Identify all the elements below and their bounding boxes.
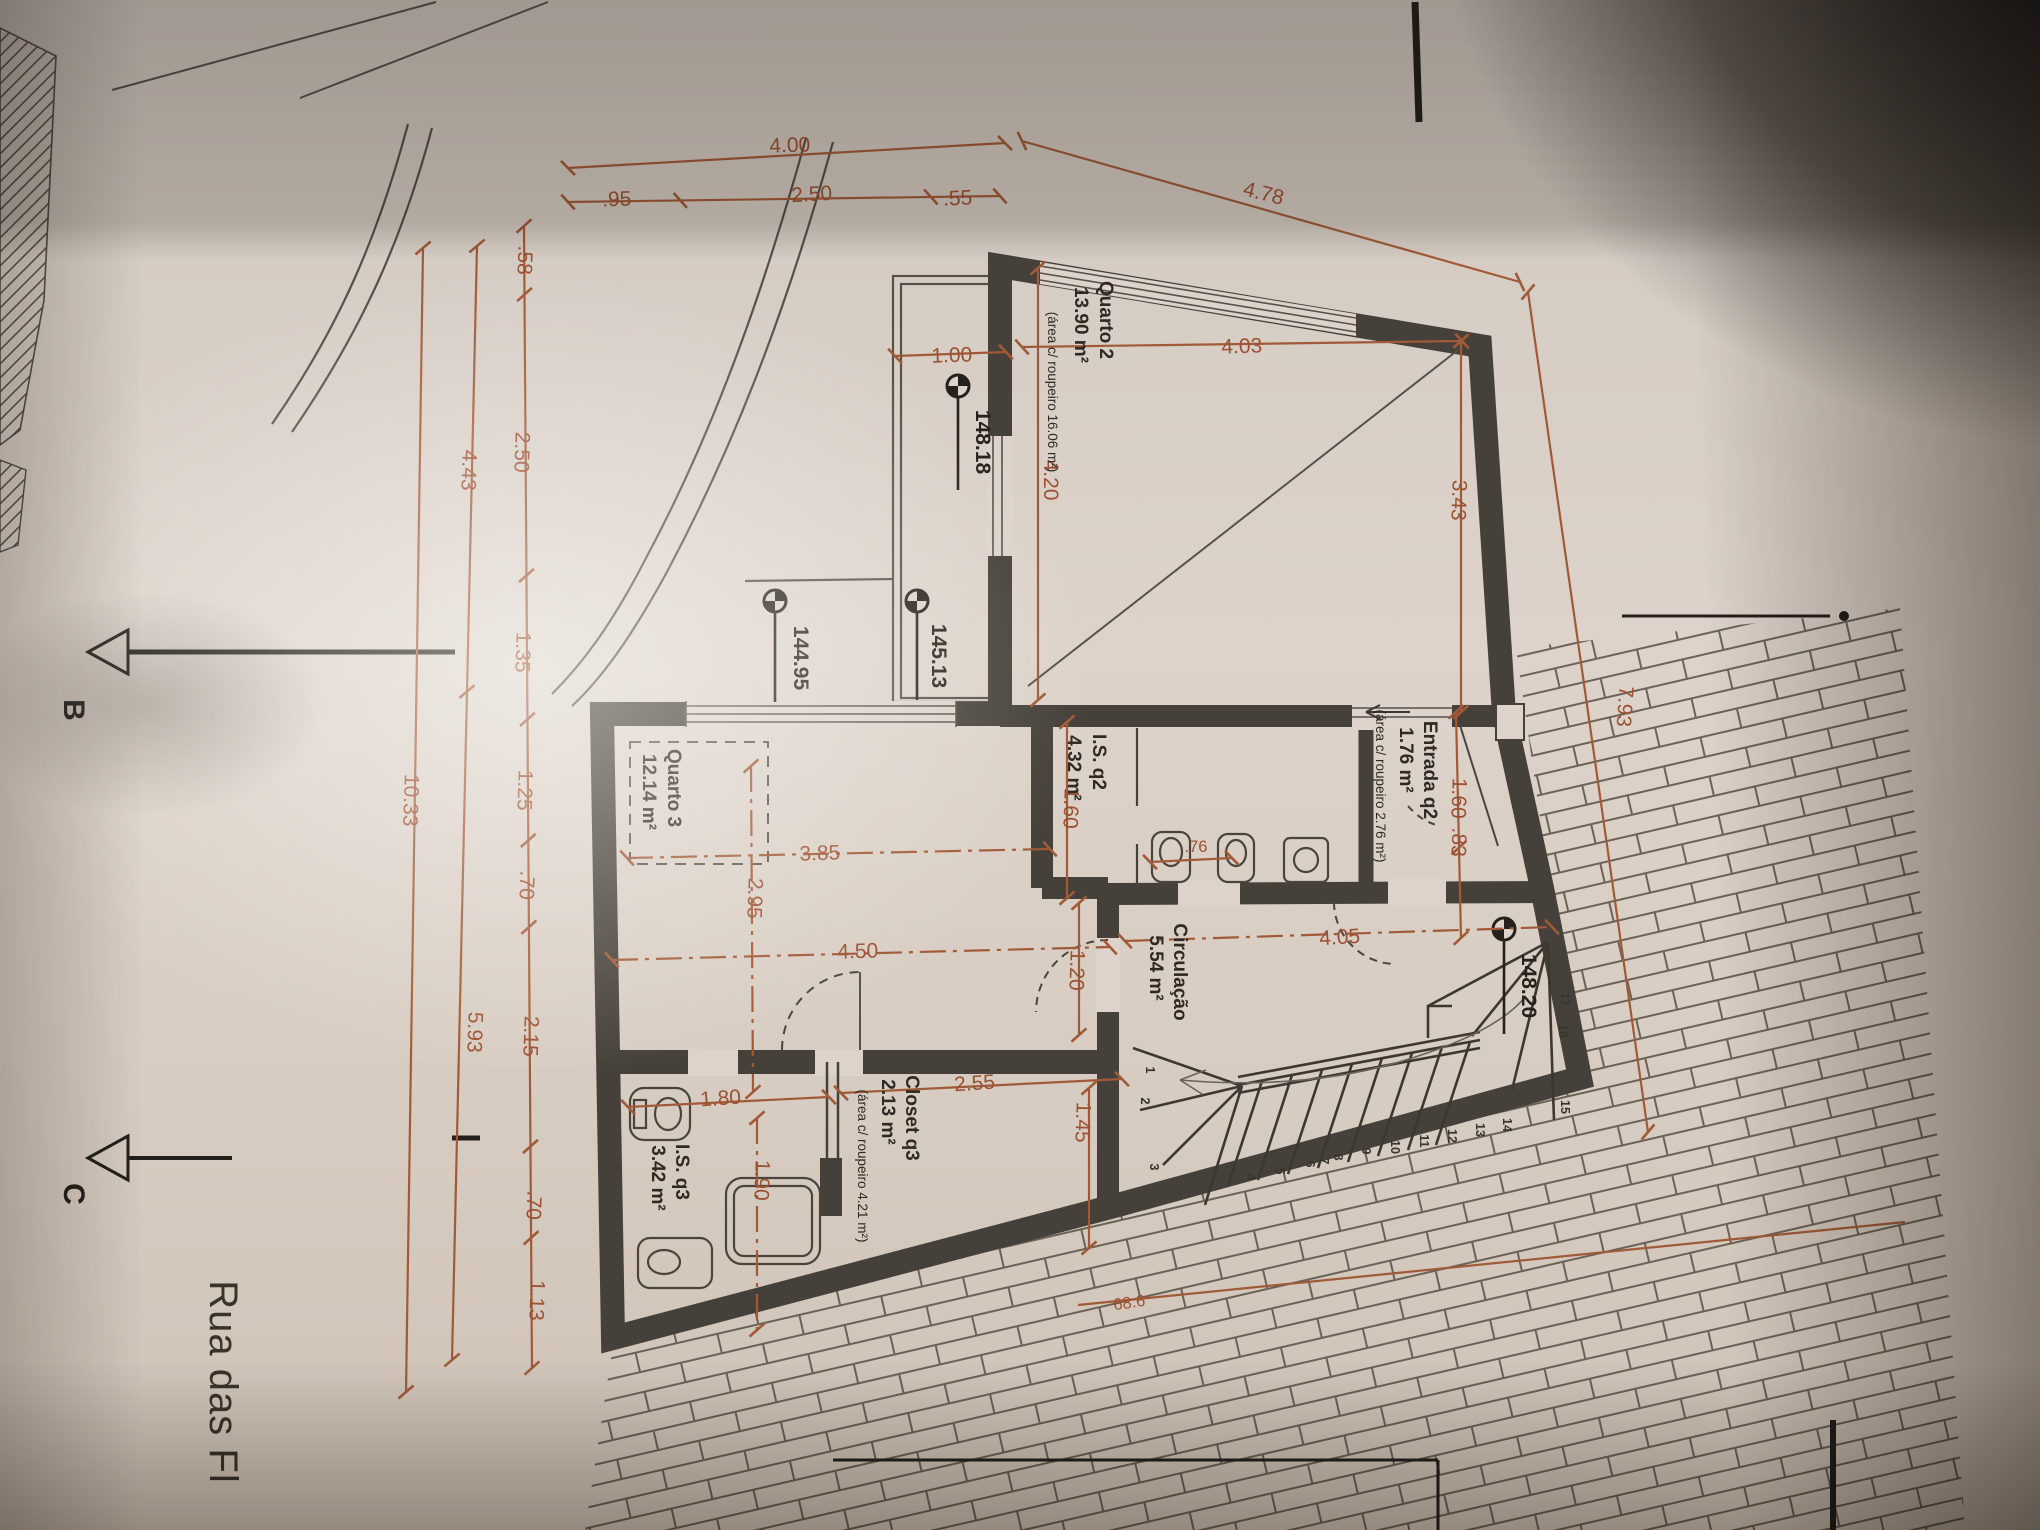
section-marker-c-arrow-icon (88, 1136, 128, 1180)
stair-step-number: 11 (1417, 1134, 1431, 1147)
stair-step-number: 4 (1244, 1174, 1258, 1181)
dimension-line (452, 246, 477, 1360)
sink-isq2 (1284, 838, 1328, 882)
dimension-label: 5.93 (462, 1011, 486, 1053)
stair-step-number: 3 (1147, 1164, 1161, 1171)
street-name: Rua das Fl (201, 1280, 245, 1483)
dimension-label: 1.00 (931, 343, 973, 367)
dimension-label: .83 (1446, 827, 1470, 857)
dimension-line (751, 766, 753, 1092)
room-label: 4.32 m² (1063, 735, 1084, 800)
room-label: 1.76 m² (1395, 727, 1416, 792)
dimension-label: .55 (942, 186, 972, 210)
section-marker-b-arrow-icon (88, 630, 128, 674)
stair-step-number: 5 (1273, 1168, 1287, 1175)
dimension-label: 10.33 (398, 774, 423, 827)
dimension-label: 1.25 (512, 769, 536, 811)
stair-step-number: 15 (1558, 1100, 1572, 1114)
dimension-label: 2.55 (953, 1071, 995, 1097)
section-letter: B (57, 699, 90, 721)
stair-step-number: 1 (1143, 1067, 1157, 1074)
dimension-line (1022, 141, 1520, 282)
room-area-note: (área c/ roupeiro 4.21 m²) (855, 1089, 870, 1242)
dimension-label: 2.50 (509, 431, 533, 473)
room-label: 5.54 m² (1145, 935, 1166, 1000)
stair-step-number: 2 (1138, 1098, 1152, 1105)
dimension-label: 1.60 (1446, 777, 1470, 819)
room-label: I.S. q2 (1088, 734, 1109, 790)
dimension-line (1456, 712, 1461, 938)
dimension-label: 4.03 (1221, 334, 1263, 358)
dimension-label: 2.95 (742, 877, 766, 919)
dimension-label: 4.00 (769, 133, 811, 157)
stair-step-number: 12 (1445, 1129, 1459, 1143)
dimension-label: 4.43 (456, 449, 480, 491)
dimension-label: 2.50 (791, 182, 833, 207)
dimension-label: .76 (1185, 838, 1208, 856)
dimension-label: 7.93 (1612, 685, 1638, 727)
floor-plan-photo: 4.00.952.50.554.781.004.034.203.431.60.8… (0, 0, 2040, 1530)
dimension-label: 3.85 (799, 841, 841, 865)
dimension-label: 3.43 (1446, 479, 1470, 521)
dimension-label: .70 (514, 870, 538, 900)
dimension-label: 1.35 (510, 631, 534, 673)
stair-step-number: 13 (1473, 1123, 1487, 1137)
dimension-label: .70 (521, 1190, 545, 1220)
dimension-label: 1.45 (1070, 1101, 1094, 1143)
stair-step-number: 7 (1317, 1158, 1331, 1165)
stair-step-number: 10 (1388, 1140, 1402, 1154)
room-label: Closet q3 (901, 1075, 922, 1161)
stair-step-number: 14 (1500, 1118, 1514, 1132)
room-area-note: (área c/ roupeiro 16.06 m²) (1045, 312, 1060, 473)
dimension-label: 1.80 (699, 1086, 741, 1112)
dimension-label: 4.05 (1319, 925, 1361, 950)
level-label: 148.18 (971, 410, 994, 475)
room-label: Quarto 2 (1095, 281, 1116, 359)
dimension-label: 1.90 (749, 1159, 773, 1201)
room-label: Quarto 3 (663, 749, 684, 827)
stair-step-number: 17 (1558, 992, 1572, 1006)
floor-plan-drawing: 4.00.952.50.554.781.004.034.203.431.60.8… (0, 0, 2040, 1530)
stair-step-number: 8 (1331, 1154, 1345, 1161)
section-letter: C (57, 1183, 90, 1205)
room-label: 13.90 m² (1070, 287, 1091, 363)
level-label: 148.20 (1517, 954, 1540, 1018)
level-label: 144.95 (789, 626, 812, 691)
dimension-label: 1.20 (1064, 949, 1088, 991)
stair-step-number: 16 (1556, 1024, 1570, 1038)
dimension-label: 4.50 (837, 939, 879, 963)
room-label: 2.13 m² (877, 1079, 898, 1144)
room-area-note: (área c/ roupeiro 2.76 m²) (1373, 709, 1388, 862)
dimension-label: 2.15 (518, 1015, 542, 1057)
dimension-label: 1.13 (524, 1279, 548, 1321)
stair-step-number: 6 (1303, 1161, 1317, 1168)
level-label: 145.13 (927, 624, 950, 688)
room-label: Entrada q2 (1419, 721, 1440, 819)
room-label: Circulação (1169, 923, 1190, 1020)
dimension-label: .58 (512, 245, 536, 275)
room-label: 3.42 m² (647, 1145, 668, 1210)
room-label: I.S. q3 (671, 1144, 692, 1200)
stair-step-number: 9 (1359, 1148, 1373, 1155)
dimension-label: .95 (602, 188, 632, 212)
room-label: 12.14 m² (638, 754, 659, 830)
road-boundary-lines (272, 124, 893, 706)
ceiling-slope-line (1028, 350, 1458, 686)
